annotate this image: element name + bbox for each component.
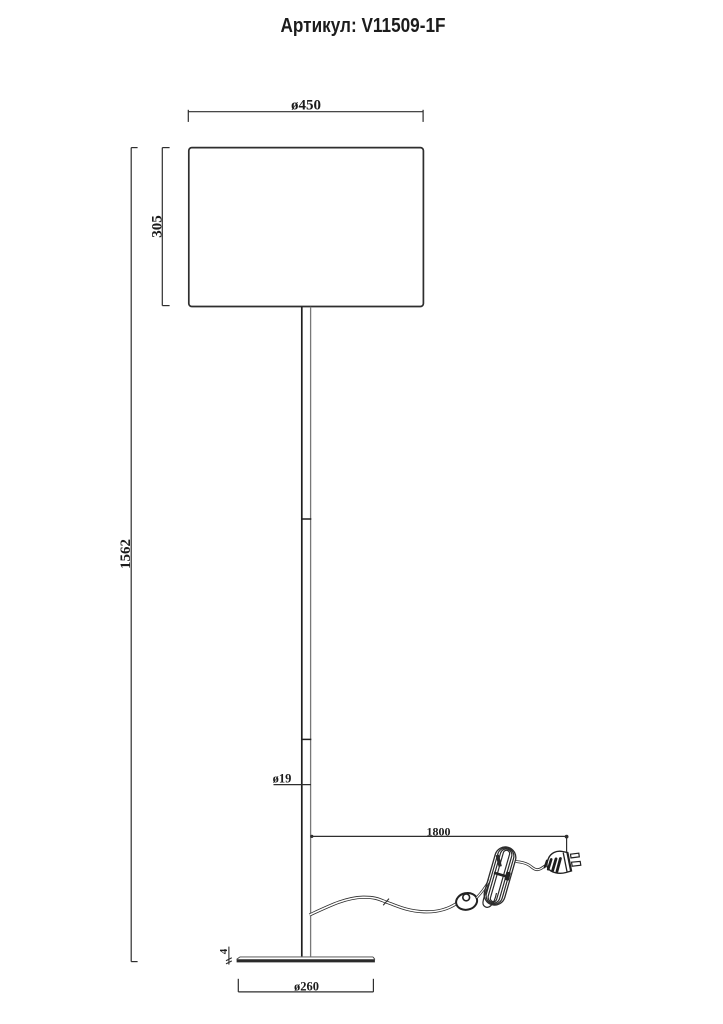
svg-text:1800: 1800 [427,824,451,838]
svg-text:305: 305 [149,215,165,238]
svg-text:4: 4 [218,948,230,954]
svg-text:ø260: ø260 [294,979,319,993]
svg-text:ø19: ø19 [273,771,292,785]
svg-text:Артикул: V11509-1F: Артикул: V11509-1F [281,15,446,37]
svg-text:1562: 1562 [118,539,134,569]
svg-text:ø450: ø450 [291,97,321,113]
